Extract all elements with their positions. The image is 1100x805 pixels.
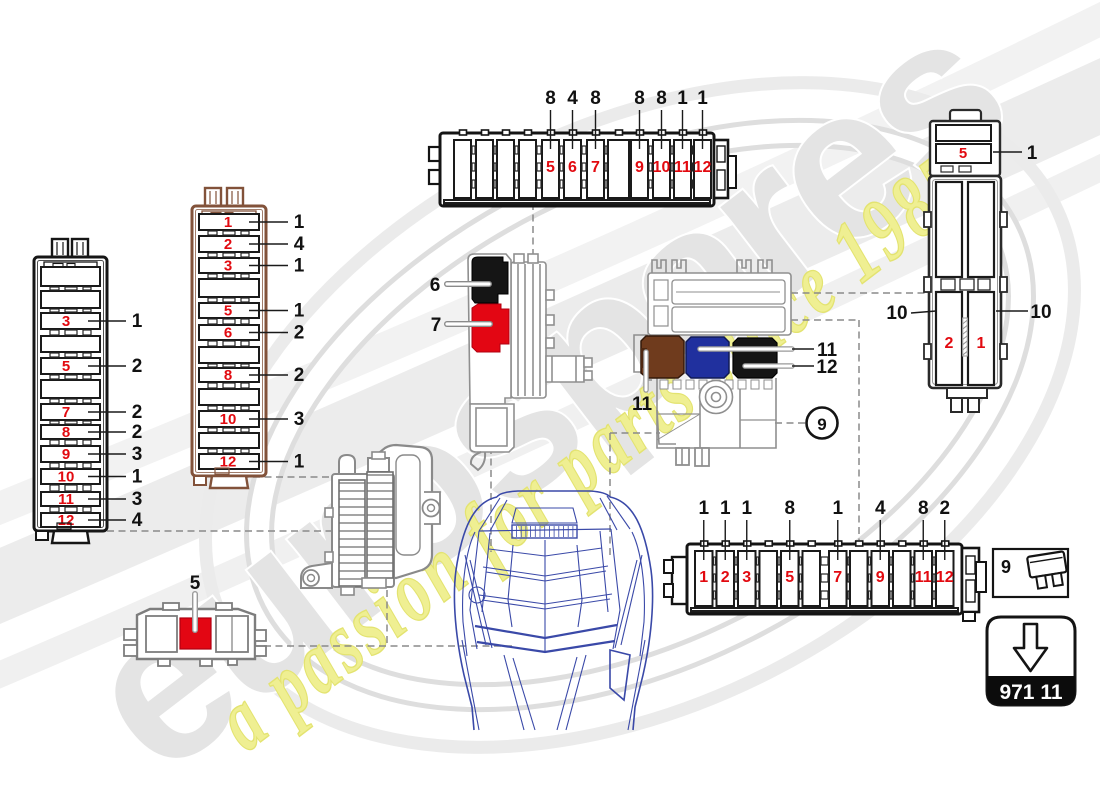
svg-text:1: 1 <box>132 467 143 488</box>
svg-text:8: 8 <box>784 498 795 519</box>
svg-text:12: 12 <box>816 357 837 378</box>
svg-text:5: 5 <box>224 303 232 320</box>
svg-text:3: 3 <box>132 444 143 465</box>
svg-text:5: 5 <box>959 145 967 162</box>
svg-text:7: 7 <box>62 404 70 421</box>
svg-text:2: 2 <box>132 356 143 377</box>
svg-text:6: 6 <box>430 275 441 296</box>
svg-text:1: 1 <box>977 335 986 352</box>
svg-text:9: 9 <box>635 159 644 176</box>
svg-text:3: 3 <box>224 258 232 275</box>
svg-text:3: 3 <box>132 489 143 510</box>
svg-text:5: 5 <box>785 569 794 586</box>
svg-text:8: 8 <box>590 88 601 109</box>
svg-text:10: 10 <box>886 303 907 324</box>
svg-text:10: 10 <box>220 411 237 428</box>
svg-text:6: 6 <box>224 325 232 342</box>
svg-text:5: 5 <box>62 358 70 375</box>
svg-text:2: 2 <box>721 569 730 586</box>
svg-text:1: 1 <box>699 569 708 586</box>
svg-text:1: 1 <box>1027 143 1038 164</box>
svg-text:4: 4 <box>567 88 578 109</box>
svg-text:9: 9 <box>1001 557 1011 577</box>
svg-text:11: 11 <box>674 159 691 176</box>
svg-text:1: 1 <box>720 498 731 519</box>
svg-text:11: 11 <box>915 569 932 586</box>
svg-text:2: 2 <box>132 402 143 423</box>
svg-text:10: 10 <box>58 469 75 486</box>
svg-text:3: 3 <box>294 409 305 430</box>
svg-text:2: 2 <box>132 422 143 443</box>
svg-text:1: 1 <box>294 212 305 233</box>
svg-text:1: 1 <box>677 88 688 109</box>
svg-text:2: 2 <box>294 365 305 386</box>
svg-text:1: 1 <box>741 498 752 519</box>
svg-text:1: 1 <box>224 214 232 231</box>
svg-text:8: 8 <box>656 88 667 109</box>
svg-text:7: 7 <box>431 315 442 336</box>
svg-text:12: 12 <box>694 159 712 176</box>
svg-text:1: 1 <box>294 452 305 473</box>
svg-text:1: 1 <box>294 301 305 322</box>
svg-text:8: 8 <box>62 424 70 441</box>
svg-text:1: 1 <box>832 498 843 519</box>
svg-text:9: 9 <box>876 569 885 586</box>
svg-text:3: 3 <box>742 569 751 586</box>
svg-text:6: 6 <box>568 159 577 176</box>
svg-text:1: 1 <box>294 256 305 277</box>
svg-text:8: 8 <box>224 367 232 384</box>
svg-text:12: 12 <box>936 569 954 586</box>
svg-text:9: 9 <box>62 446 70 463</box>
svg-text:2: 2 <box>939 498 950 519</box>
svg-text:12: 12 <box>58 512 75 529</box>
svg-text:2: 2 <box>945 335 954 352</box>
svg-text:8: 8 <box>545 88 556 109</box>
svg-text:10: 10 <box>653 159 671 176</box>
svg-text:5: 5 <box>546 159 555 176</box>
svg-text:4: 4 <box>875 498 886 519</box>
svg-text:1: 1 <box>698 498 709 519</box>
svg-text:10: 10 <box>1030 302 1051 323</box>
svg-text:4: 4 <box>294 234 305 255</box>
svg-text:971 11: 971 11 <box>999 681 1062 704</box>
svg-text:11: 11 <box>58 491 74 508</box>
svg-text:7: 7 <box>833 569 842 586</box>
svg-text:2: 2 <box>224 236 232 253</box>
svg-text:11: 11 <box>632 394 653 415</box>
svg-text:8: 8 <box>634 88 645 109</box>
svg-text:8: 8 <box>918 498 929 519</box>
svg-text:4: 4 <box>132 510 143 531</box>
svg-text:7: 7 <box>591 159 600 176</box>
svg-text:1: 1 <box>132 311 143 332</box>
svg-text:3: 3 <box>62 313 70 330</box>
svg-text:5: 5 <box>190 573 201 594</box>
svg-text:1: 1 <box>697 88 708 109</box>
svg-text:9: 9 <box>817 415 826 434</box>
svg-text:2: 2 <box>294 323 305 344</box>
